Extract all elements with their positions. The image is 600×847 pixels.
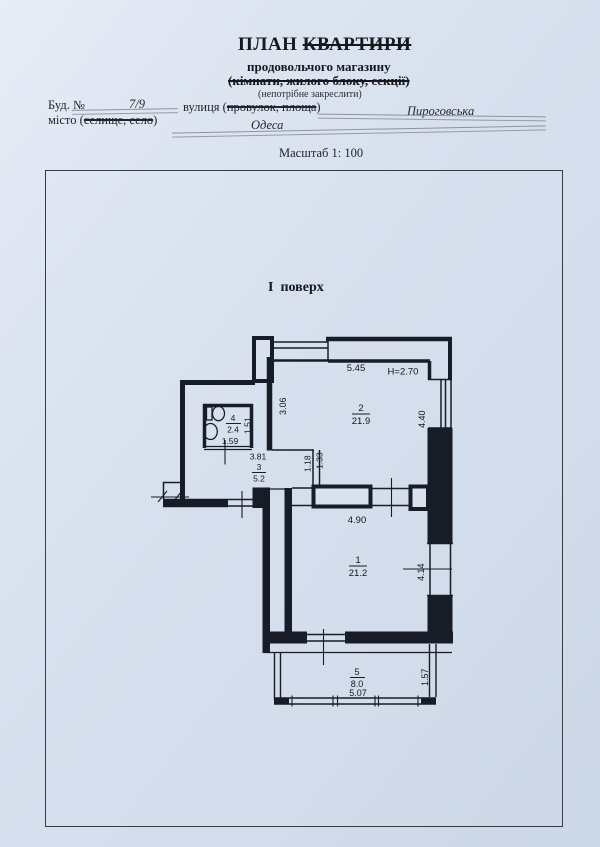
room1-walls xyxy=(253,428,453,665)
title-word-struck: КВАРТИРИ xyxy=(303,34,412,55)
room-3-area: 5.2 xyxy=(253,474,265,484)
room-2-number: 2 xyxy=(358,403,363,414)
page-title: ПЛАН КВАРТИРИ xyxy=(238,34,411,56)
scanned-plan-document: { "document": { "title_plan": "ПЛАН", "t… xyxy=(0,0,600,847)
window-top xyxy=(272,339,328,361)
room-4-label: 4 2.4 xyxy=(226,413,241,435)
opening-room1-right xyxy=(403,543,453,596)
room-1-number: 1 xyxy=(355,555,360,566)
dim-porch-depth: 1.57 xyxy=(420,668,430,686)
room-5-number: 5 xyxy=(354,667,359,677)
window-right-room2 xyxy=(428,380,452,429)
dim-room1-width: 4.90 xyxy=(348,515,367,526)
note: (непотрібне закреслити) xyxy=(258,89,362,100)
city-label-struck: селище, село xyxy=(84,113,153,127)
room-5-label: 5 8.0 xyxy=(350,667,365,689)
floor-label: І поверх xyxy=(268,280,324,296)
city-label: місто (селище, село) xyxy=(48,113,157,128)
room-4-number: 4 xyxy=(231,413,236,423)
room-1-label: 1 21.2 xyxy=(349,555,368,579)
dim-room2-left: 3.06 xyxy=(278,397,288,415)
scale-label: Масштаб 1: 100 xyxy=(279,146,363,161)
dim-wc-door: 1.59 xyxy=(222,436,239,446)
crossed-subtitle: (кімнати, жилого блоку, секції) xyxy=(228,73,410,89)
room3-south-wall xyxy=(151,483,270,519)
underline-street xyxy=(318,114,546,121)
room-3-number: 3 xyxy=(257,462,262,472)
room-2-area: 21.9 xyxy=(352,416,371,427)
dim-room2-right: 4.40 xyxy=(417,410,427,428)
title-word-plan: ПЛАН xyxy=(238,34,297,55)
dim-room3-width: 3.81 xyxy=(250,452,267,462)
room-4-area: 2.4 xyxy=(227,425,239,435)
dim-room1-right: 4.14 xyxy=(416,563,426,581)
floor-plan-drawing: 2 21.9 4 2.4 3 5.2 1 21.2 5 8.0 5.45 Н=2… xyxy=(140,320,470,720)
dim-partition-a: 1.18 xyxy=(303,455,313,472)
room-1-area: 21.2 xyxy=(349,568,368,579)
toilet-icon xyxy=(207,406,225,420)
dim-room2-width: 5.45 xyxy=(347,363,366,374)
dim-height-note: Н=2.70 xyxy=(388,367,419,378)
dim-wc-side: 1.51 xyxy=(243,417,253,434)
underline-city xyxy=(172,125,546,137)
dim-porch-width: 5.07 xyxy=(349,688,367,698)
dim-partition-b: 1.33 xyxy=(315,452,325,469)
sink-icon xyxy=(204,424,218,440)
door-room1-porch xyxy=(307,629,345,665)
street-label: вулиця (провулок, площа) xyxy=(183,100,321,115)
street-label-struck: провулок, площа xyxy=(227,100,317,114)
room-3-label: 3 5.2 xyxy=(252,462,266,484)
door-room2-room1 xyxy=(371,478,411,517)
room-2-label: 2 21.9 xyxy=(352,403,371,427)
